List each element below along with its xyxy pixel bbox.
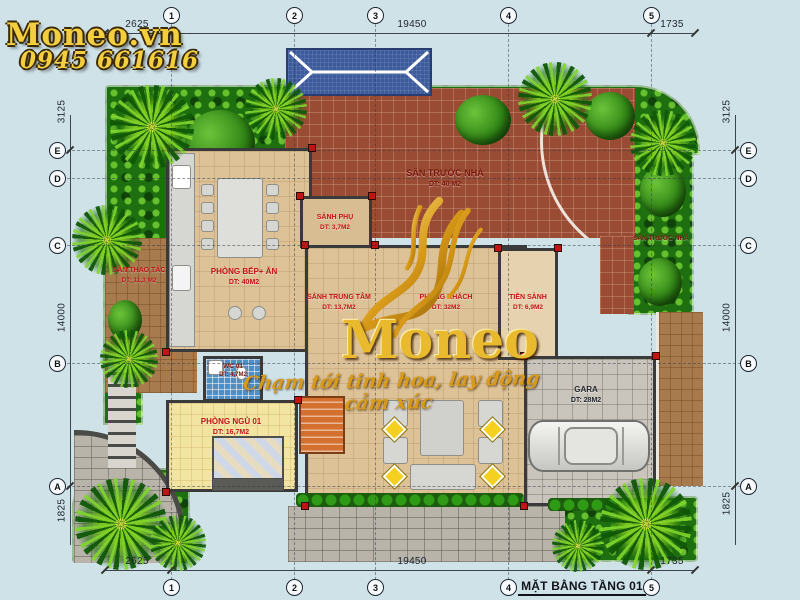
room-name: GARA: [555, 384, 617, 396]
tree: [585, 92, 635, 140]
dining-chair: [201, 220, 214, 232]
floor-plan-canvas: 2625 19450 1735 2625 19450 1735 3125 140…: [0, 0, 800, 600]
logo-phone-number: 0945 661616: [20, 47, 199, 74]
dim-line-left: [70, 115, 71, 545]
grid-bubble-col-5-top: 5: [643, 7, 660, 24]
dim-left-top: 3125: [57, 89, 68, 135]
grid-bubble-row-E-left: E: [49, 142, 66, 159]
bed: [212, 436, 284, 480]
dining-chair: [201, 202, 214, 214]
car-rear-window-line: [622, 427, 624, 465]
dim-right-bottom: 1825: [722, 481, 733, 527]
stool: [228, 306, 242, 320]
grid-bubble-col-2-top: 2: [286, 7, 303, 24]
column: [301, 502, 309, 510]
grid-bubble-row-E-right: E: [740, 142, 757, 159]
room-area: DT: 40 M2: [393, 180, 497, 190]
palm-tree: [518, 62, 592, 136]
grid-bubble-col-1-bottom: 1: [163, 579, 180, 596]
dim-right-top: 3125: [722, 89, 733, 135]
grid-bubble-col-3-bottom: 3: [367, 579, 384, 596]
grid-bubble-col-4-bottom: 4: [500, 579, 517, 596]
dim-line-top: [105, 33, 695, 34]
column: [652, 352, 660, 360]
grid-line-A: [52, 486, 746, 487]
hedge-row: [296, 493, 524, 507]
grid-bubble-row-D-left: D: [49, 170, 66, 187]
grid-bubble-row-B-right: B: [740, 355, 757, 372]
dining-chair: [266, 184, 279, 196]
room-area: DT: 40M2: [206, 278, 282, 288]
column: [162, 348, 170, 356]
palm-tree: [72, 205, 142, 275]
grid-bubble-col-2-bottom: 2: [286, 579, 303, 596]
label-garage: GARA DT: 28M2: [555, 384, 617, 406]
column: [162, 488, 170, 496]
grid-bubble-col-3-top: 3: [367, 7, 384, 24]
tree: [455, 95, 511, 145]
tree: [638, 258, 682, 306]
dim-bottom-left: 2625: [112, 556, 162, 567]
dining-table: [217, 178, 263, 258]
room-area: DT: 28M2: [555, 396, 617, 406]
grid-bubble-row-A-right: A: [740, 478, 757, 495]
stool: [252, 306, 266, 320]
car-windshield-line: [558, 427, 560, 465]
grid-line-D: [52, 178, 746, 179]
armchair: [383, 437, 408, 464]
palm-tree: [110, 85, 194, 169]
grid-bubble-row-C-left: C: [49, 237, 66, 254]
room-area: DT: 11,3 M2: [106, 276, 172, 285]
armchair: [478, 437, 503, 464]
palm-tree: [630, 110, 696, 176]
dim-top-center: 19450: [382, 19, 442, 30]
watermark-slogan-text: Chạm tới tinh hoa, lay động cảm xúc: [232, 367, 548, 416]
column: [520, 502, 528, 510]
column: [296, 192, 304, 200]
room-name: SÂN THAO TÁC: [106, 266, 172, 276]
palm-tree: [552, 520, 604, 572]
dim-right-middle: 14000: [722, 292, 733, 344]
grid-line-5: [651, 24, 652, 580]
grid-line-1: [171, 24, 172, 580]
entry-canopy-roof: [286, 48, 432, 96]
room-name: SÂN TRƯỚC NHÀ: [629, 234, 693, 243]
dim-line-bottom: [105, 570, 695, 571]
grid-bubble-row-C-right: C: [740, 237, 757, 254]
dining-chair: [266, 238, 279, 250]
palm-tree: [245, 78, 307, 140]
dim-tick: [691, 566, 699, 574]
dining-chair: [266, 202, 279, 214]
grid-bubble-row-B-left: B: [49, 355, 66, 372]
car-cabin: [564, 427, 618, 465]
kitchen-stove: [172, 265, 191, 291]
canopy-ridge-lines: [288, 50, 430, 94]
grid-line-2: [294, 24, 295, 580]
bed-footboard: [212, 478, 284, 491]
courtyard-side-strip: [600, 236, 634, 314]
grid-line-4: [508, 24, 509, 580]
side-path: [656, 312, 703, 486]
dim-line-right: [735, 115, 736, 545]
grid-bubble-row-D-right: D: [740, 170, 757, 187]
car-top-view: [528, 420, 650, 472]
label-bedroom: PHÒNG NGỦ 01 DT: 16,7M2: [181, 416, 281, 438]
watermark-brand-text: Moneo: [300, 310, 580, 371]
dim-left-middle: 14000: [57, 292, 68, 344]
label-garden-strip: SÂN TRƯỚC NHÀ: [629, 234, 693, 243]
palm-tree: [100, 330, 158, 388]
room-area: DT: 16,7M2: [181, 428, 281, 438]
dim-bottom-right: 1735: [648, 556, 696, 567]
grid-line-E: [52, 150, 746, 151]
dining-chair: [201, 184, 214, 196]
label-kitchen: PHÒNG BẾP+ ĂN DT: 40M2: [206, 266, 282, 288]
room-name: PHÒNG BẾP+ ĂN: [206, 266, 282, 278]
dining-chair: [201, 238, 214, 250]
grid-bubble-col-4-top: 4: [500, 7, 517, 24]
rear-paving: [288, 506, 525, 562]
plan-title: MẶT BẰNG TẦNG 01: [518, 579, 646, 596]
room-name: PHÒNG NGỦ 01: [181, 416, 281, 428]
label-service-yard: SÂN THAO TÁC DT: 11,3 M2: [106, 266, 172, 286]
grid-bubble-row-A-left: A: [49, 478, 66, 495]
dim-tick: [691, 29, 699, 37]
dining-chair: [266, 220, 279, 232]
kitchen-sink: [172, 165, 191, 189]
dim-bottom-center: 19450: [382, 556, 442, 567]
